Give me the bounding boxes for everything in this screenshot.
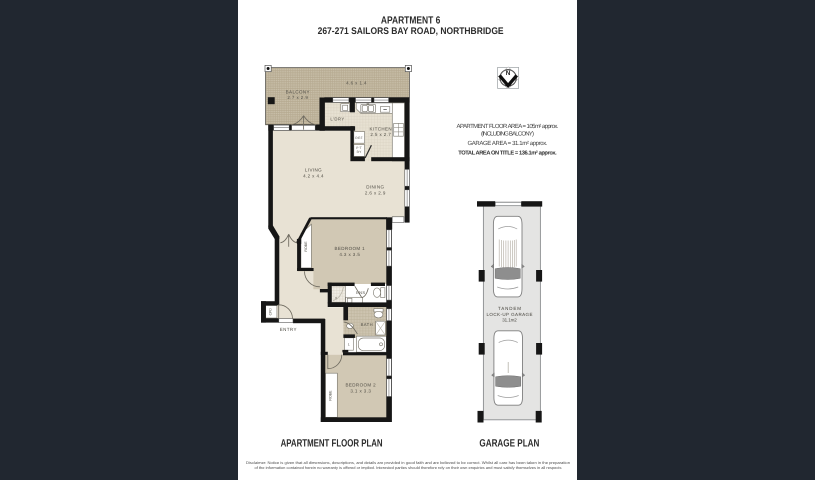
svg-text:APARTMENT FLOOR AREA = 105m² a: APARTMENT FLOOR AREA = 105m² approx. bbox=[457, 123, 559, 130]
svg-text:N: N bbox=[506, 70, 511, 77]
svg-text:Disclaimer: Notice is given th: Disclaimer: Notice is given that all dim… bbox=[246, 461, 570, 465]
svg-text:GARAGE PLAN: GARAGE PLAN bbox=[479, 438, 539, 450]
svg-text:4.2 x 4.4: 4.2 x 4.4 bbox=[303, 173, 324, 178]
svg-text:ROBE: ROBE bbox=[304, 241, 308, 252]
svg-text:LOCK-UP GARAGE: LOCK-UP GARAGE bbox=[487, 312, 533, 317]
svg-text:APARTMENT 6: APARTMENT 6 bbox=[381, 15, 441, 26]
svg-text:2.6 x 2.9: 2.6 x 2.9 bbox=[365, 191, 386, 196]
svg-text:BEDROOM 2: BEDROOM 2 bbox=[345, 383, 376, 388]
svg-text:4.6 x 1.4: 4.6 x 1.4 bbox=[346, 80, 367, 85]
svg-text:BATH: BATH bbox=[361, 322, 373, 327]
svg-text:BALCONY: BALCONY bbox=[286, 90, 310, 95]
svg-text:L: L bbox=[348, 343, 350, 347]
svg-text:267-271 SAILORS BAY ROAD, NORT: 267-271 SAILORS BAY ROAD, NORTHBRIDGE bbox=[318, 26, 505, 37]
svg-text:TANDEM: TANDEM bbox=[498, 306, 521, 311]
svg-text:of the information contained h: of the information contained herein no w… bbox=[255, 466, 562, 470]
svg-text:TOTAL AREA ON TITLE = 136.1m²: TOTAL AREA ON TITLE = 136.1m² approx. bbox=[458, 151, 557, 157]
svg-text:REF: REF bbox=[355, 136, 363, 140]
svg-text:APARTMENT FLOOR PLAN: APARTMENT FLOOR PLAN bbox=[281, 438, 383, 450]
svg-text:L'DRY: L'DRY bbox=[330, 117, 344, 122]
svg-text:LIVING: LIVING bbox=[305, 167, 322, 172]
svg-text:BEDROOM 1: BEDROOM 1 bbox=[334, 246, 365, 251]
svg-text:ROBE: ROBE bbox=[328, 390, 332, 401]
svg-text:ENTRY: ENTRY bbox=[280, 327, 297, 332]
svg-text:31.1m2: 31.1m2 bbox=[502, 317, 517, 322]
svg-text:ENS: ENS bbox=[356, 290, 365, 295]
svg-text:KITCHEN: KITCHEN bbox=[370, 126, 393, 131]
svg-text:RY: RY bbox=[357, 150, 363, 154]
svg-text:CPD: CPD bbox=[268, 308, 272, 316]
svg-text:2.5 x 2.7: 2.5 x 2.7 bbox=[370, 132, 391, 137]
svg-text:4.3 x 3.5: 4.3 x 3.5 bbox=[339, 252, 360, 257]
svg-text:GARAGE AREA = 31.1m² approx.: GARAGE AREA = 31.1m² approx. bbox=[468, 140, 548, 147]
svg-text:(INCLUDING BALCONY): (INCLUDING BALCONY) bbox=[481, 131, 534, 138]
svg-text:3.1 x 3.3: 3.1 x 3.3 bbox=[350, 389, 371, 394]
svg-text:DINING: DINING bbox=[366, 185, 384, 190]
svg-text:2.7 x 2.9: 2.7 x 2.9 bbox=[287, 95, 308, 100]
